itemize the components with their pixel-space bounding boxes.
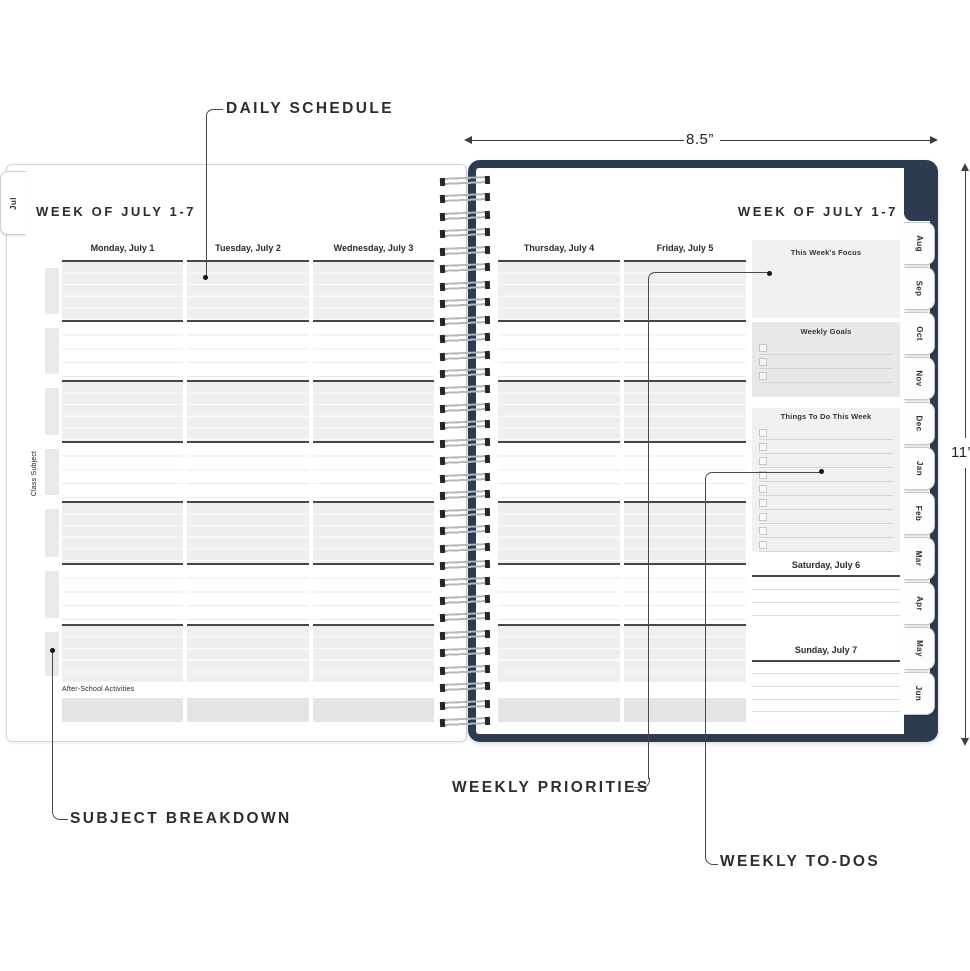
weekly-priorities-label: WEEKLY PRIORITIES [452,779,650,797]
schedule-block [313,320,434,380]
subject-breakdown-callout-dot [50,648,55,653]
schedule-block [498,624,620,682]
schedule-block [187,624,309,682]
schedule-block [313,441,434,501]
schedule-block [62,563,183,624]
schedule-block [187,563,309,624]
month-tab-mar: Mar [904,537,935,580]
schedule-block [62,260,183,320]
width-dimension-label: 8.5” [686,131,714,148]
width-dimension-arrow-right [930,136,938,144]
schedule-block [62,320,183,380]
spiral-binding-loop [441,665,489,676]
weekly-todos-callout-tail [705,856,718,865]
month-tab-label: Mar [915,551,924,566]
after-school-band [62,698,183,722]
month-tab-sep: Sep [904,267,935,310]
month-tab-label: May [914,640,923,657]
weekly-goals-checkbox-list [759,341,893,383]
after-school-band [313,698,434,722]
class-subject-box [45,571,59,618]
daily-schedule-callout-line [206,109,223,279]
spiral-binding-loop [441,542,489,553]
daily-schedule-label: DAILY SCHEDULE [226,100,394,118]
weekly-goals-title: Weekly Goals [752,322,900,336]
weekly-priorities-callout-dot [767,271,772,276]
class-subject-box [45,268,59,314]
cover-corner-bottom-right [904,714,938,741]
height-dimension-line-bottom [965,468,966,738]
this-weeks-focus-box: This Week's Focus [752,240,900,318]
spiral-binding-loop [441,403,489,414]
right-page-title: WEEK OF JULY 1-7 [640,204,898,219]
spiral-binding-loop [441,281,489,292]
left-page-title: WEEK OF JULY 1-7 [36,204,196,219]
schedule-block [62,624,183,682]
jul-month-tab-label: Jul [9,196,18,209]
day-header: Friday, July 5 [624,243,746,253]
width-dimension-line-right [720,140,934,141]
things-to-do-title: Things To Do This Week [752,408,900,421]
class-subject-box [45,449,59,495]
month-tab-label: Feb [915,506,924,521]
schedule-block [498,260,620,320]
subject-breakdown-callout-line [52,653,68,820]
schedule-block [187,320,309,380]
checkbox-row [759,426,893,440]
month-tab-nov: Nov [904,357,935,400]
checkbox-row [759,369,893,383]
month-tab-jun: Jun [904,672,935,715]
spiral-binding-loop [441,595,489,606]
checkbox-row [759,454,893,468]
month-tab-jan: Jan [904,447,935,490]
month-tab-label: Aug [914,235,923,252]
weekly-todos-callout-line [705,472,822,857]
schedule-block [498,320,620,380]
spiral-binding-loop [441,699,489,710]
class-subject-side-label-text: Class Subject [32,450,39,495]
checkbox-row [759,355,893,369]
month-tab-may: May [904,627,935,670]
month-tab-dec: Dec [904,402,935,445]
planner-product-image: DAILY SCHEDULE SUBJECT BREAKDOWN WEEKLY … [0,0,970,971]
this-weeks-focus-title: This Week's Focus [752,240,900,257]
schedule-block [62,380,183,441]
schedule-block [313,624,434,682]
class-subject-box [45,388,59,435]
schedule-block [62,441,183,501]
schedule-block [498,501,620,563]
month-tab-apr: Apr [904,582,935,625]
month-tab-label: Oct [914,326,923,341]
spiral-binding-loop [441,438,489,449]
after-school-band [498,698,620,722]
spiral-binding-loop [441,473,489,484]
schedule-block [498,380,620,441]
day-header: Wednesday, July 3 [313,243,434,253]
height-dimension-arrow-down [961,738,969,746]
month-tab-aug: Aug [904,222,935,265]
schedule-block [498,441,620,501]
schedule-block [498,563,620,624]
month-tab-label: Dec [914,416,923,432]
spiral-binding-loop [441,630,489,641]
day-header: Monday, July 1 [62,243,183,253]
class-subject-box [45,509,59,557]
schedule-block [313,260,434,320]
schedule-block [187,501,309,563]
height-dimension-label: 11” [951,444,970,461]
spiral-binding-loop [441,368,489,379]
daily-schedule-callout-dot [203,275,208,280]
day-header: Thursday, July 4 [498,243,620,253]
month-tab-oct: Oct [904,312,935,355]
month-tab-label: Jun [915,686,924,701]
checkbox-row [759,341,893,355]
checkbox-row [759,440,893,454]
spiral-binding-loop [441,350,489,361]
jul-month-tab: Jul [0,171,26,235]
width-dimension-line-left [470,140,684,141]
month-tab-label: Apr [914,596,923,611]
height-dimension-line-top [965,170,966,438]
schedule-block [187,441,309,501]
schedule-block [62,501,183,563]
after-school-activities-label: After-School Activities [62,686,134,693]
spiral-binding-loop [441,717,489,728]
after-school-band [187,698,309,722]
schedule-block [313,563,434,624]
month-tab-label: Jan [915,461,924,476]
spiral-binding-loop [441,246,489,257]
weekly-todos-callout-dot [819,469,824,474]
cover-corner-top-right [904,163,938,221]
width-dimension-arrow-left [464,136,472,144]
weekly-todos-label: WEEKLY TO-DOS [720,853,880,871]
height-dimension-arrow-up [961,163,969,171]
month-tab-label: Sep [915,281,924,297]
class-subject-side-label: Class Subject [28,445,42,501]
spiral-binding-loop [441,316,489,327]
spiral-binding-loop [441,508,489,519]
subject-breakdown-label: SUBJECT BREAKDOWN [70,810,292,828]
spiral-binding-loop [441,211,489,222]
schedule-block [313,501,434,563]
month-tab-label: Nov [914,370,923,386]
schedule-block [187,380,309,441]
schedule-block [313,380,434,441]
month-tab-feb: Feb [904,492,935,535]
spiral-binding-loop [441,560,489,571]
class-subject-box [45,328,59,374]
